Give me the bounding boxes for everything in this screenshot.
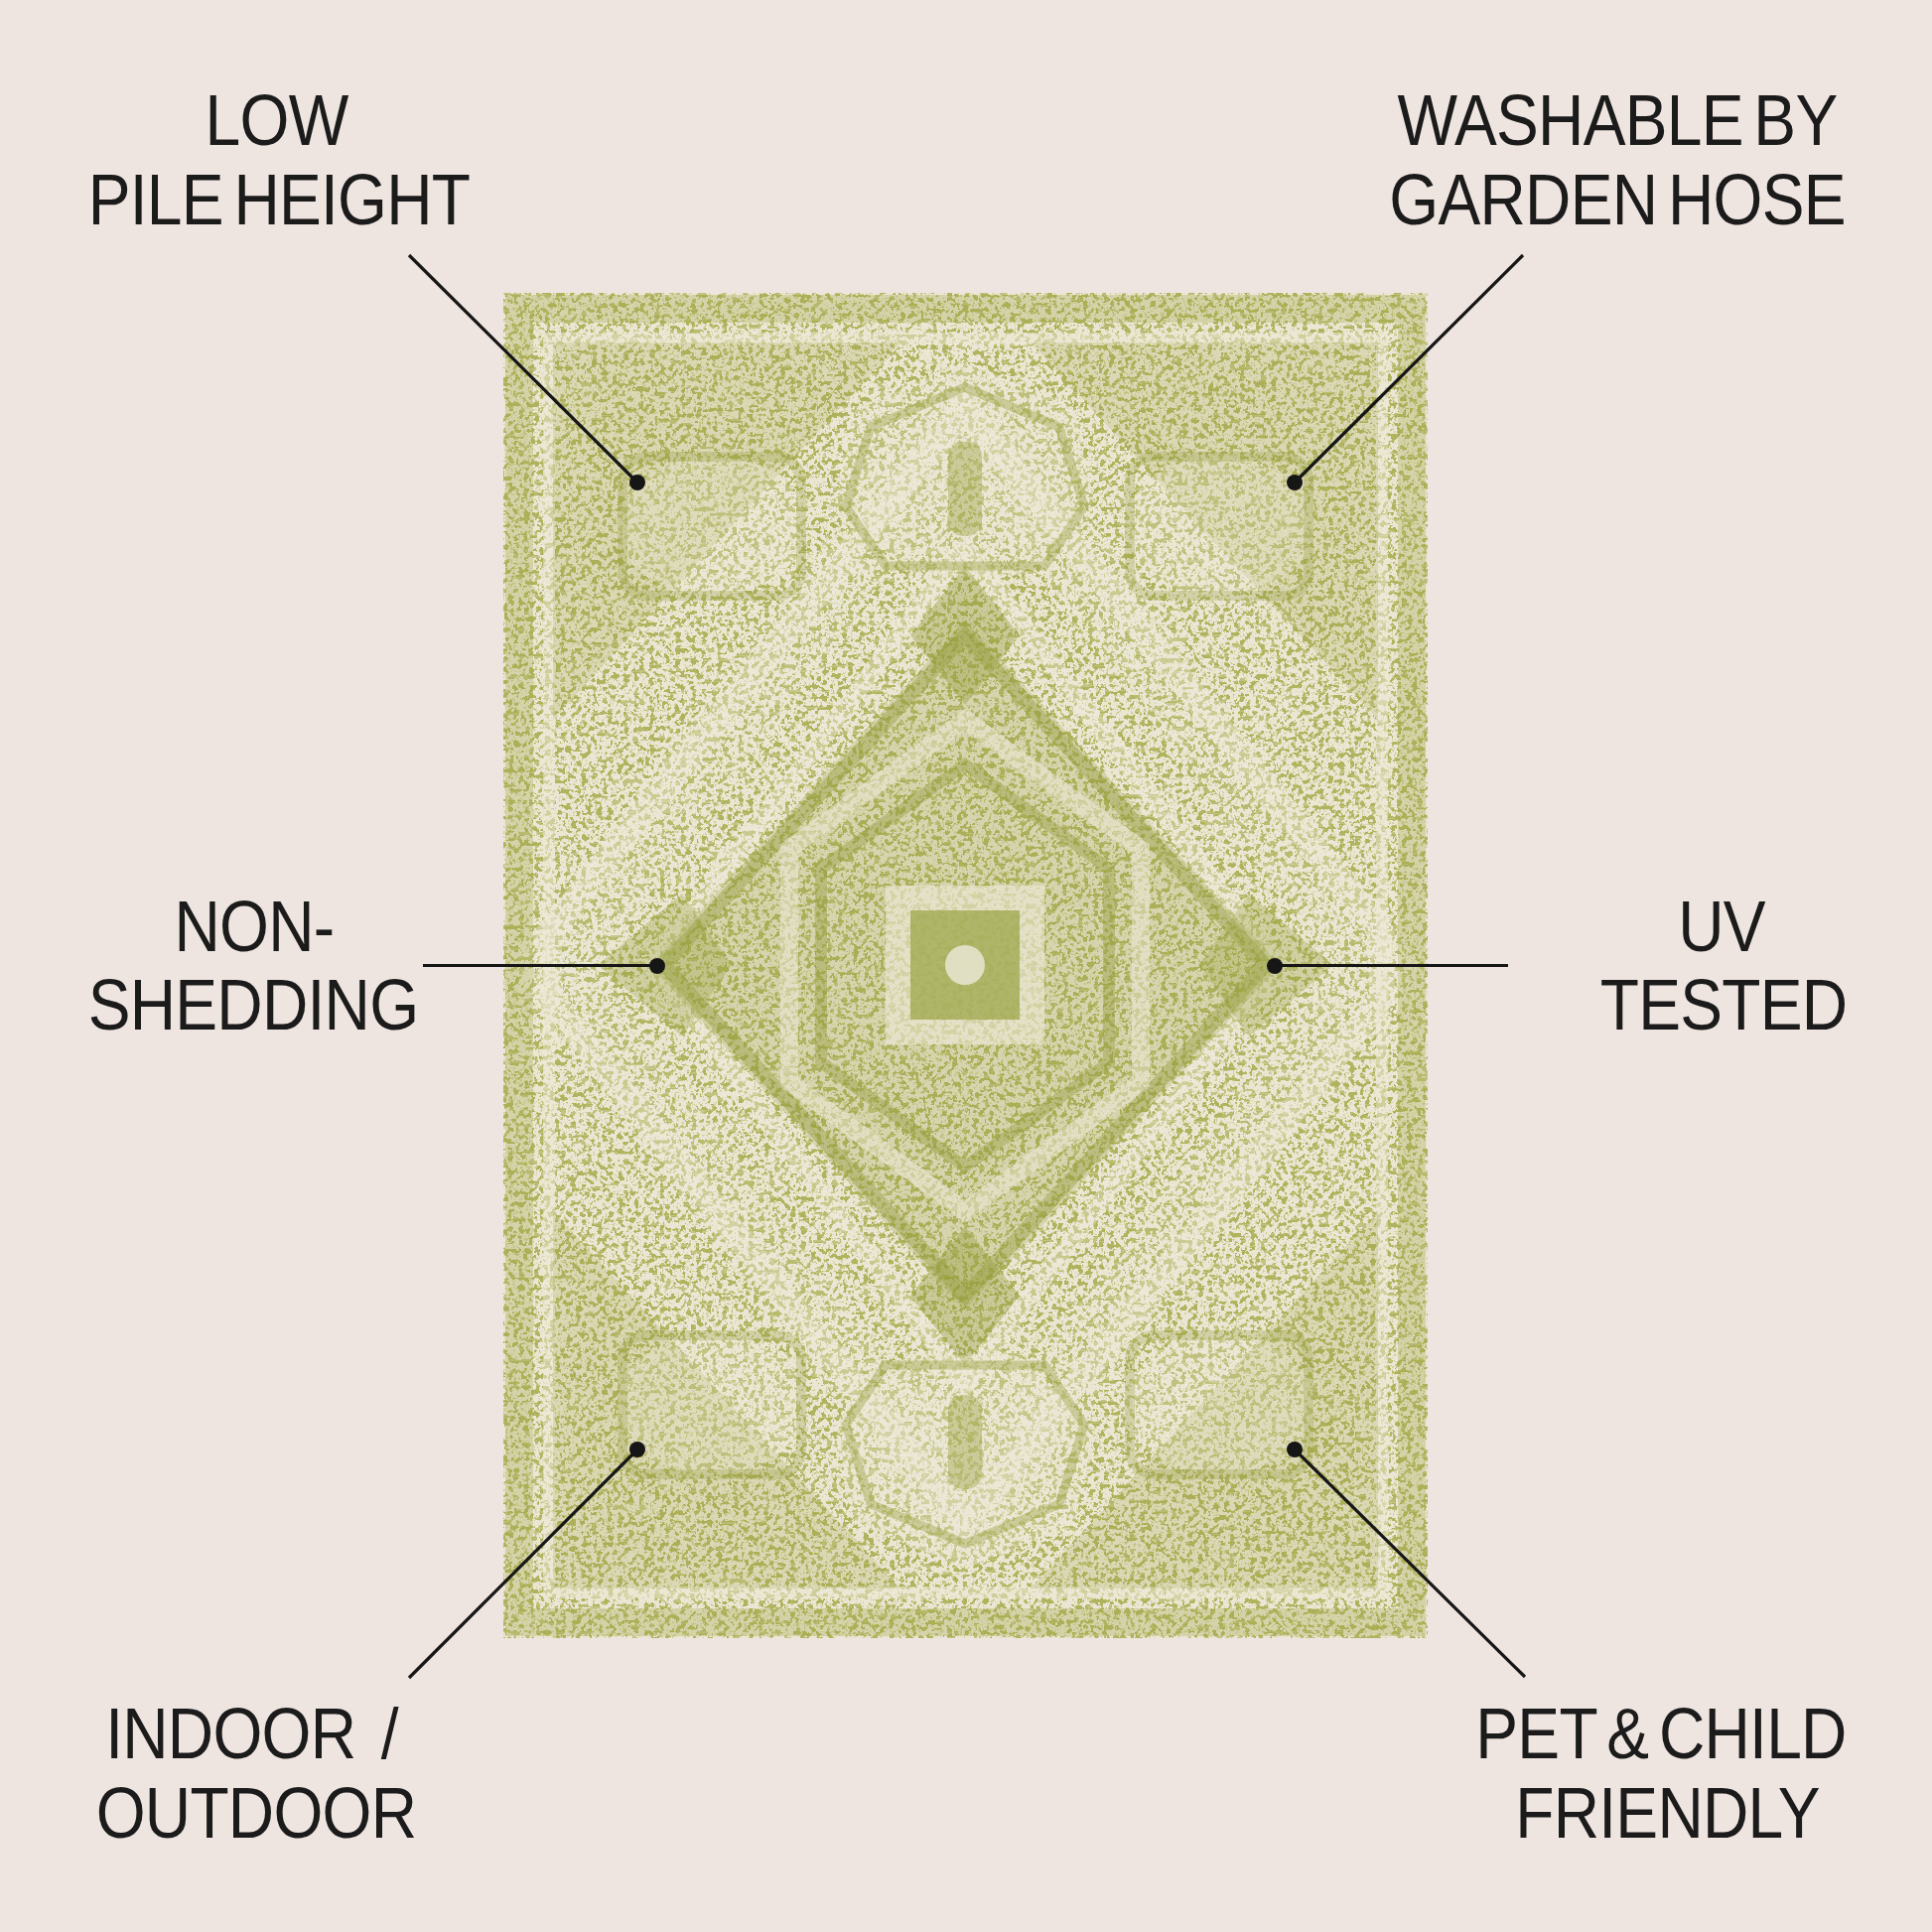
svg-text:SHEDDING: SHEDDING bbox=[88, 964, 419, 1045]
svg-text:PET & CHILD: PET & CHILD bbox=[1475, 1693, 1846, 1774]
svg-text:OUTDOOR: OUTDOOR bbox=[96, 1772, 417, 1854]
svg-text:WASHABLE BY: WASHABLE BY bbox=[1398, 79, 1838, 161]
svg-text:GARDEN HOSE: GARDEN HOSE bbox=[1389, 159, 1845, 240]
svg-text:NON-: NON- bbox=[175, 886, 335, 967]
svg-text:FRIENDLY: FRIENDLY bbox=[1515, 1772, 1820, 1854]
svg-text:UV: UV bbox=[1678, 886, 1766, 967]
svg-text:PILE HEIGHT: PILE HEIGHT bbox=[88, 159, 471, 240]
svg-text:TESTED: TESTED bbox=[1600, 964, 1848, 1045]
svg-text:LOW: LOW bbox=[206, 79, 349, 161]
svg-text:INDOOR /: INDOOR / bbox=[105, 1693, 399, 1774]
